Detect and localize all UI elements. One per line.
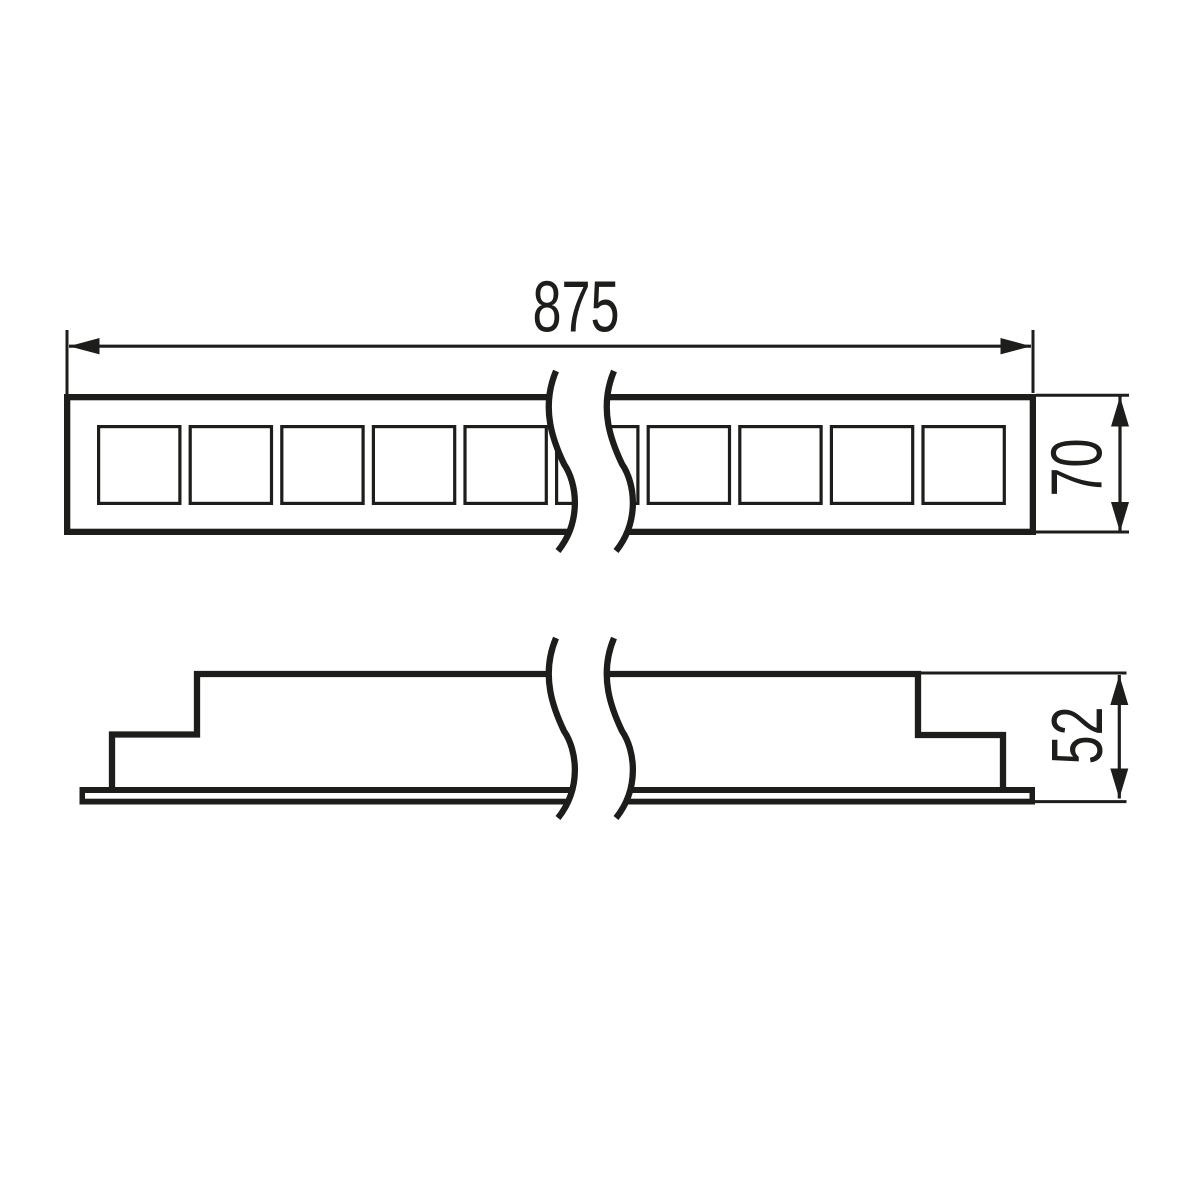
svg-text:52: 52 [1038, 706, 1118, 764]
svg-text:875: 875 [532, 267, 619, 347]
svg-text:70: 70 [1037, 438, 1117, 496]
